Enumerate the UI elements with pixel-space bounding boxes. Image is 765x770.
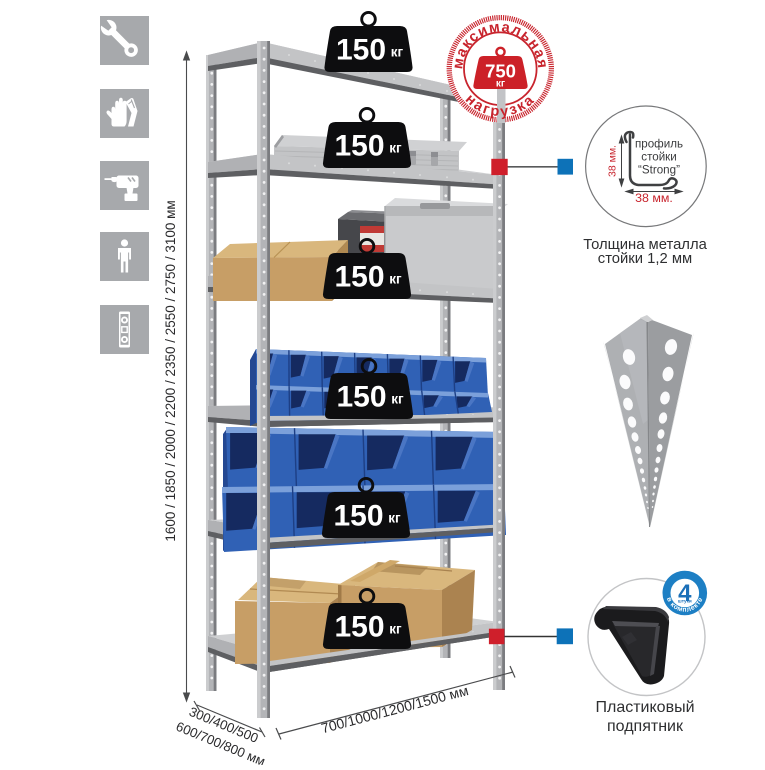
svg-text:кг: кг — [389, 140, 402, 155]
svg-text:“Strong”: “Strong” — [638, 164, 680, 177]
svg-text:38 мм.: 38 мм. — [635, 191, 673, 205]
svg-text:штуки: штуки — [678, 599, 692, 604]
svg-text:подпятник: подпятник — [607, 718, 684, 735]
svg-text:стойки: стойки — [641, 151, 676, 164]
svg-text:кг: кг — [496, 79, 505, 90]
svg-text:150: 150 — [334, 260, 384, 293]
svg-text:150: 150 — [336, 380, 386, 413]
svg-text:38 мм.: 38 мм. — [607, 145, 619, 177]
svg-text:150: 150 — [333, 499, 383, 532]
svg-text:кг: кг — [388, 510, 401, 525]
svg-text:профиль: профиль — [635, 138, 683, 151]
svg-text:150: 150 — [334, 610, 384, 643]
svg-text:Пластиковый: Пластиковый — [595, 699, 694, 716]
svg-text:стойки 1,2 мм: стойки 1,2 мм — [598, 251, 692, 267]
svg-text:кг: кг — [389, 271, 402, 286]
svg-text:150: 150 — [336, 33, 386, 66]
svg-text:кг: кг — [391, 391, 404, 406]
svg-text:150: 150 — [334, 129, 384, 162]
svg-text:кг: кг — [389, 621, 402, 636]
svg-text:1600 / 1850 / 2000 / 2200 / 23: 1600 / 1850 / 2000 / 2200 / 2350 / 2550 … — [163, 200, 178, 541]
svg-text:кг: кг — [391, 44, 404, 59]
